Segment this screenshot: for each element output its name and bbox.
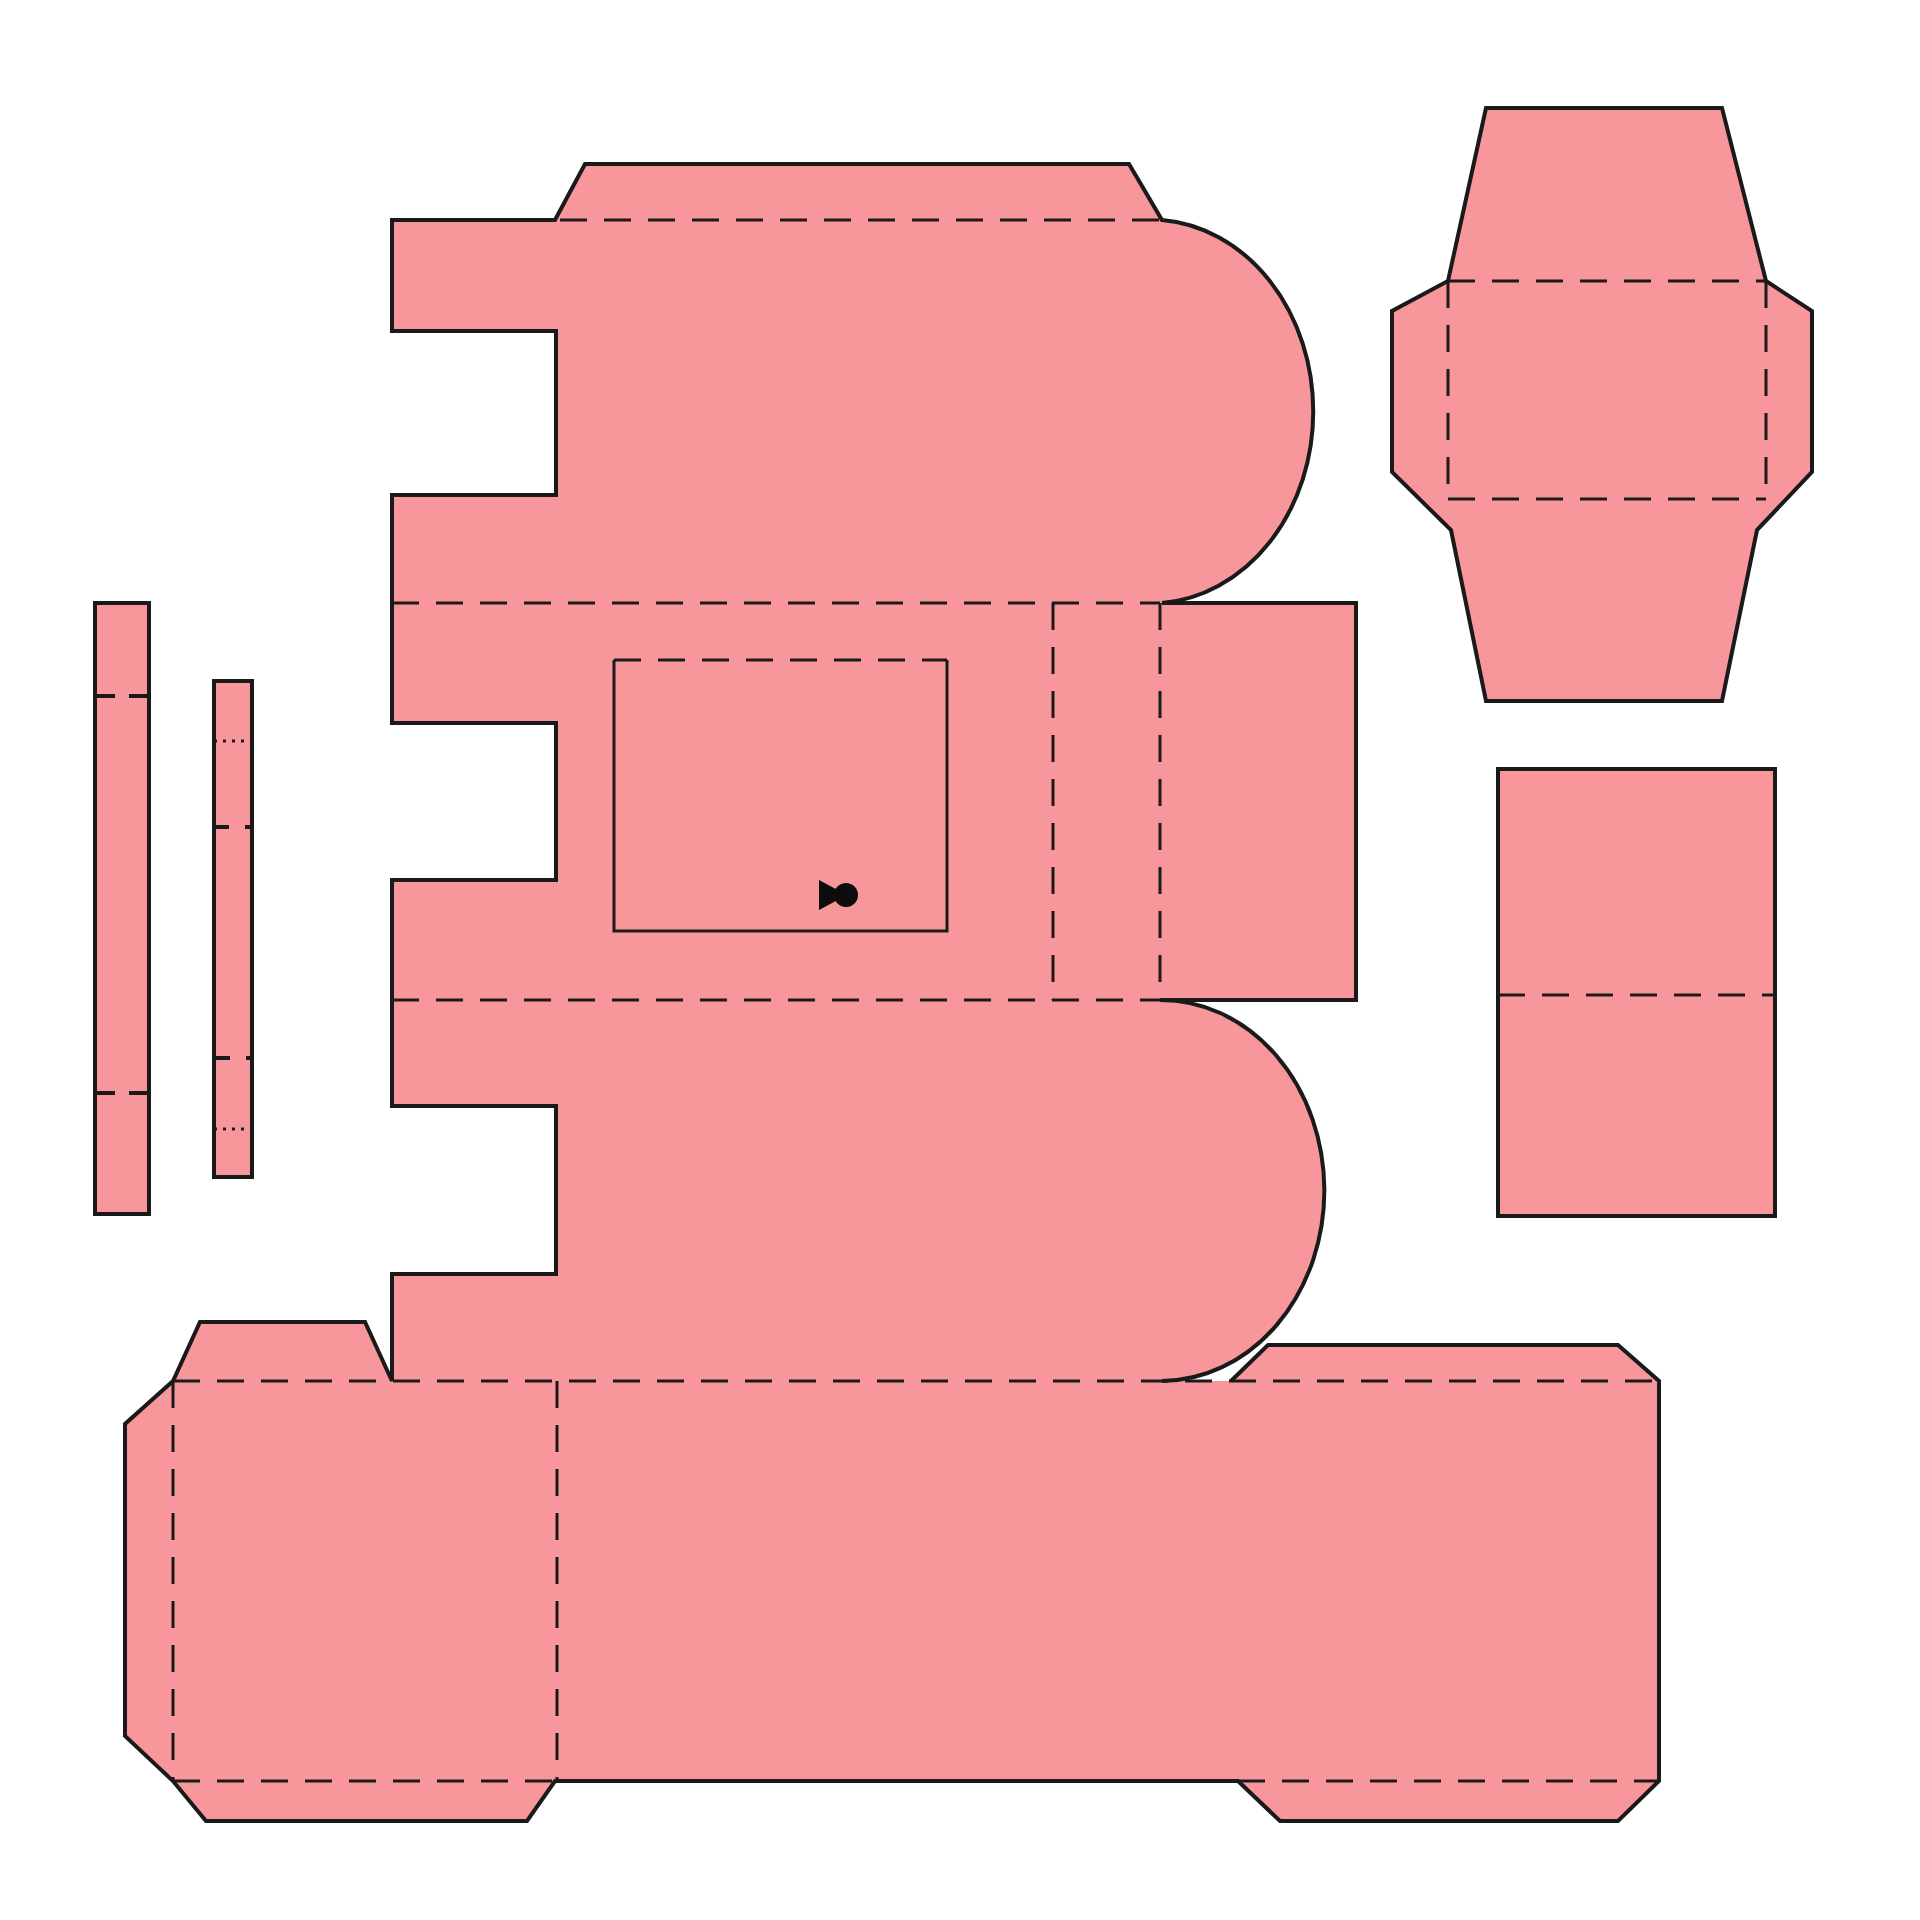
papercraft-template-page — [0, 0, 1920, 1920]
side-panel-piece-outline — [1498, 769, 1775, 1216]
glue-strip-short — [214, 681, 252, 1177]
glue-strip-short-outline — [214, 681, 252, 1177]
keyhole-icon-round — [834, 883, 858, 907]
glue-strip-long — [95, 603, 149, 1214]
lid-flap-piece — [1392, 108, 1812, 701]
lid-flap-piece-outline — [1392, 108, 1812, 701]
side-panel-piece — [1498, 769, 1775, 1216]
papercraft-template-canvas — [0, 0, 1920, 1920]
